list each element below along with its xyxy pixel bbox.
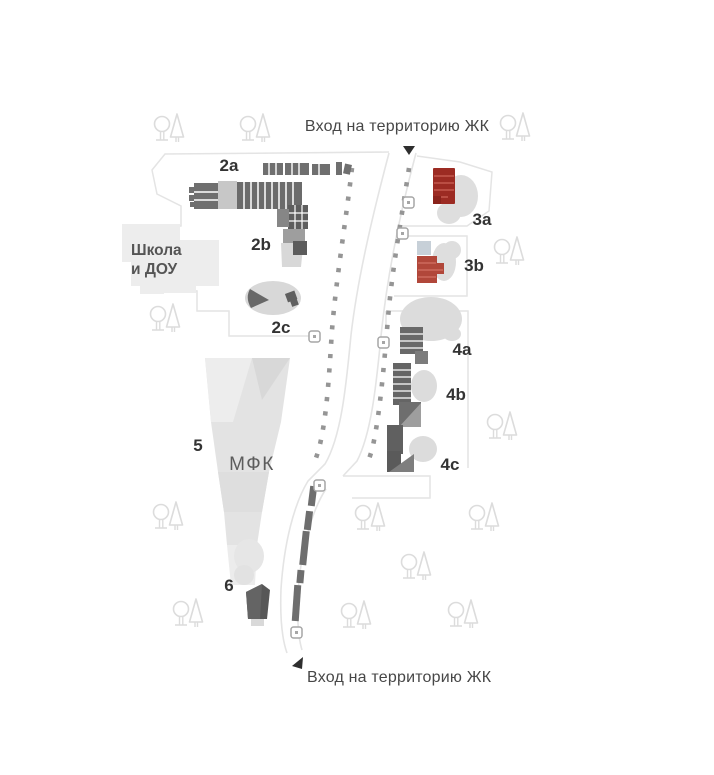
entrance-top-label: Вход на территорию ЖК	[305, 118, 489, 136]
building-label-5[interactable]: 5	[193, 436, 202, 456]
building-2b[interactable]	[277, 205, 308, 267]
building-label-4a[interactable]: 4a	[453, 340, 472, 360]
building-label-2b[interactable]: 2b	[251, 235, 271, 255]
tree-icon	[241, 114, 270, 142]
tree-icon	[470, 503, 499, 531]
school-label-line1: Школа	[131, 241, 182, 260]
building-label-3b[interactable]: 3b	[464, 256, 484, 276]
tree-icon	[342, 601, 371, 629]
parking-dots	[314, 168, 409, 464]
building-6[interactable]	[246, 584, 270, 626]
entrance-bottom-label: Вход на территорию ЖК	[307, 669, 491, 687]
building-2c[interactable]	[245, 281, 301, 315]
building-label-4b[interactable]: 4b	[446, 385, 466, 405]
tree-icon	[449, 600, 478, 628]
building-label-6[interactable]: 6	[224, 576, 233, 596]
tree-icon	[402, 552, 431, 580]
tree-icon	[151, 304, 180, 332]
tree-icon	[495, 237, 524, 265]
building-3b[interactable]	[417, 241, 461, 283]
site-plan-map: Вход на территорию ЖК Вход на территорию…	[0, 0, 714, 775]
building-label-3a[interactable]: 3a	[473, 210, 492, 230]
tree-icon	[154, 502, 183, 530]
building-label-2c[interactable]: 2c	[272, 318, 291, 338]
gate-marker-icon	[291, 197, 414, 638]
arrow-down-icon	[403, 146, 415, 155]
tree-icon	[356, 503, 385, 531]
tree-icon	[174, 599, 203, 627]
building-label-2a[interactable]: 2a	[220, 156, 239, 176]
building-2a[interactable]	[189, 162, 352, 209]
roadside-strip	[292, 486, 317, 622]
tree-icon	[488, 412, 517, 440]
building-3a[interactable]	[433, 168, 478, 224]
building-label-4c[interactable]: 4c	[441, 455, 460, 475]
site-plan-canvas	[0, 0, 714, 775]
tree-icon	[155, 114, 184, 142]
arrow-left-icon	[292, 657, 303, 669]
school-label: Школа и ДОУ	[131, 241, 182, 279]
mfk-label[interactable]: МФК	[229, 454, 275, 476]
tree-icon	[501, 113, 530, 141]
school-label-line2: и ДОУ	[131, 260, 182, 279]
